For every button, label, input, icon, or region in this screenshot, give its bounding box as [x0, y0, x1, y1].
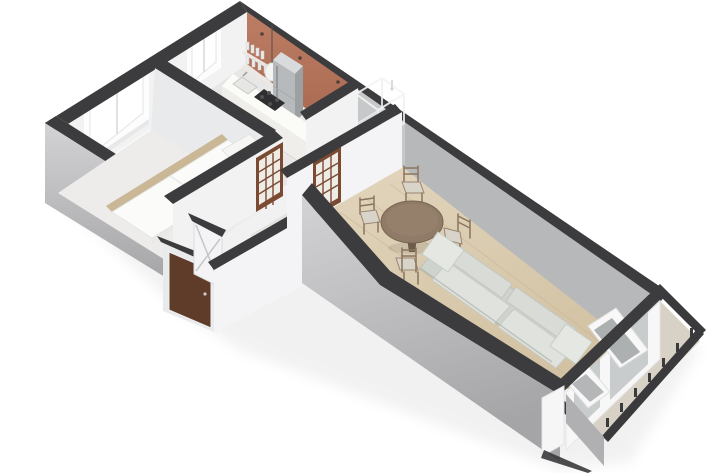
balcony-side-frame	[542, 386, 564, 456]
floorplan-canvas	[0, 0, 710, 473]
floorplan-3d-rendering	[0, 0, 710, 473]
